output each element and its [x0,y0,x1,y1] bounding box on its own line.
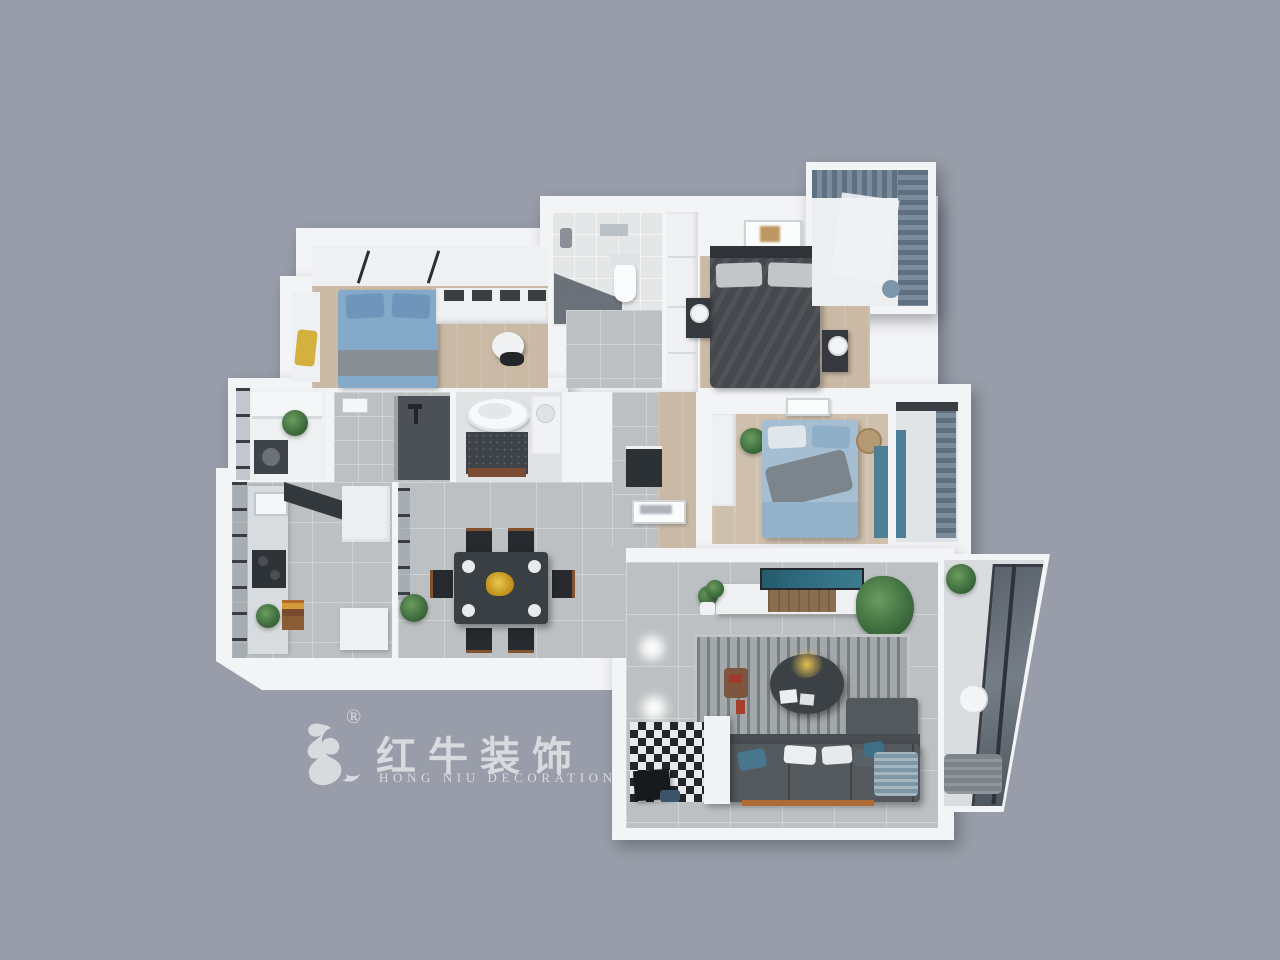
kitchen-upper-cabinet [342,486,390,542]
plant-pot [700,602,715,615]
cooktop [252,550,286,588]
master-bed-pillow [716,262,763,288]
shower-fixture-icon [414,404,418,424]
apartment-render-scene: ® 红牛装饰 HONG NIU DECORATION [0,0,1280,960]
second-bed-pillow [811,425,850,449]
place-setting-plate [528,604,541,617]
second-bed-duvet [762,502,858,538]
hall-floor-wood [658,392,696,548]
gold-centerpiece [486,572,514,596]
master-balcony-curtain [898,170,928,306]
study-bed-pillow [345,293,384,319]
hongniu-bull-logo-icon [302,722,364,790]
shower-wet-zone [398,396,450,480]
tv-screen [760,568,864,590]
dining-chair [508,628,534,653]
place-setting-plate [462,604,475,617]
hall-niche-cabinet [626,446,662,487]
kitchen-plant [256,604,280,628]
master-wall-art-paint [760,226,780,242]
shower-fixture-icon [560,228,572,248]
vanity-sink-icon [536,404,555,423]
sofa-wood-base [742,800,874,806]
entry-blue-item [660,790,680,802]
closet-shelf-line [668,256,696,258]
cooktop-burner-icon [258,556,268,566]
bedside-lamp-icon [828,336,848,356]
entry-tall-cabinet [704,716,730,804]
dining-window [398,488,410,600]
shower-glass-edge [394,396,398,480]
coffee-table-magazine [779,689,797,704]
office-chair-base [500,352,524,366]
desk-shelf-box [472,290,492,301]
bathtub-basin [478,403,512,419]
side-stool [724,668,748,698]
dining-chair [466,528,492,553]
kitchen-white-cabinet [340,608,388,650]
toilet [614,262,636,302]
bedroom2-balcony-curtain [936,408,956,538]
sofa-pillow-white [783,745,816,765]
dining-chair [430,570,453,598]
entry-wall-hook-red-icon [736,700,745,714]
console-plant-pot [706,580,724,598]
chaise-ribbed-cushion [874,752,918,796]
side-stool-red-item [729,674,742,683]
place-setting-plate [528,560,541,573]
utility-window [236,388,250,480]
balcony-round-table [958,684,988,714]
dining-chair [466,628,492,653]
desk-shelf-box [444,290,464,301]
brand-name-english: HONG NIU DECORATION [379,770,617,786]
yellow-cushion [294,329,318,367]
utility-plant [282,410,308,436]
toilet-tank [610,254,640,265]
bedroom2-left-cabinet [712,414,736,506]
hall-floor-upper [566,310,662,388]
balcony-bench-cushion [944,754,1002,794]
bedside-lamp-icon [690,304,709,323]
bedroom2-teal-accent-wall [874,446,888,538]
kitchen-window [232,482,247,658]
balcony-plant [946,564,976,594]
balcony-blue-pillow [882,280,900,298]
dining-plant [400,594,428,622]
kitchen-shelf-jars [282,600,304,630]
coffee-table-magazine [800,693,815,705]
bedroom2-balcony-teal-wall [896,430,906,538]
ceiling-light-glow [642,696,666,720]
place-setting-plate [462,560,475,573]
desk-shelf-box [500,290,520,301]
closet-shelf-line [668,352,696,354]
living-plant-large [856,576,914,638]
hall-art-paint [640,505,672,514]
wood-bath-mat [468,468,526,477]
cooktop-burner-icon [270,570,280,580]
desk-shelf-box [528,290,546,301]
study-bed-pillow [391,293,430,319]
bedroom2-wall-art [786,398,830,416]
kitchen-sink [254,492,288,516]
master-bed-headboard [710,246,820,258]
bath-shelf-icon [600,224,628,236]
washing-machine-door-icon [262,448,280,466]
dining-chair [508,528,534,553]
sofa-pillow-white [821,745,852,765]
bedroom2-balcony-window-frame [896,402,958,411]
sheer-curtain [830,192,899,283]
master-bed-pillow [768,262,815,288]
dining-chair [552,570,575,598]
study-bed-blanket [338,350,438,376]
bathroom-sink [342,398,368,413]
ceiling-light-glow [640,636,664,660]
registered-trademark-symbol: ® [346,706,361,729]
second-bed-pillow [767,425,806,449]
